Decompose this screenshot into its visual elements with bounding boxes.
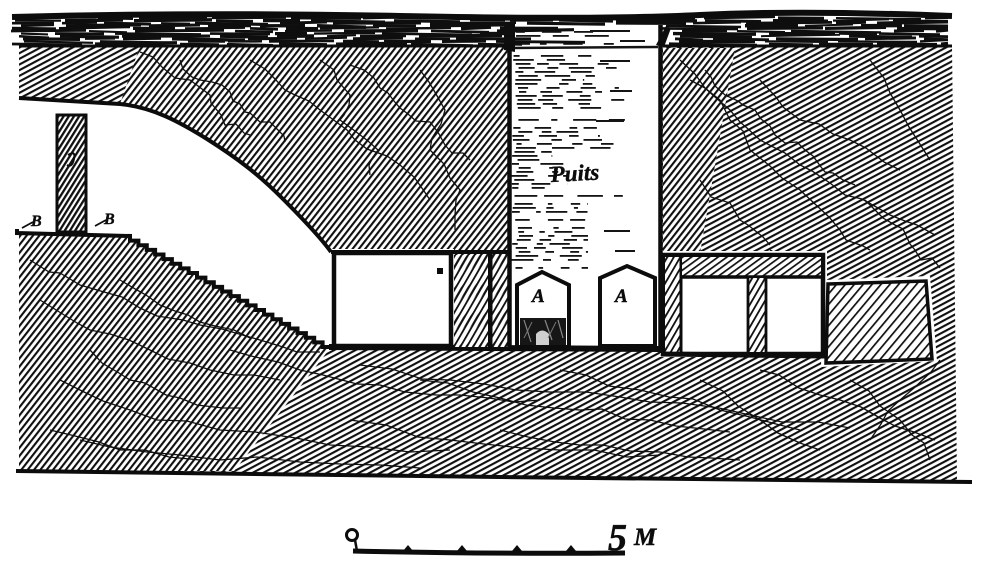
svg-text:M: M [633, 524, 657, 551]
svg-text:A: A [531, 286, 545, 307]
svg-text:B: B [30, 213, 42, 230]
svg-text:B: B [103, 211, 115, 228]
svg-text:Puits: Puits [549, 160, 600, 188]
svg-text:A: A [614, 286, 628, 307]
svg-text:5: 5 [608, 517, 627, 559]
